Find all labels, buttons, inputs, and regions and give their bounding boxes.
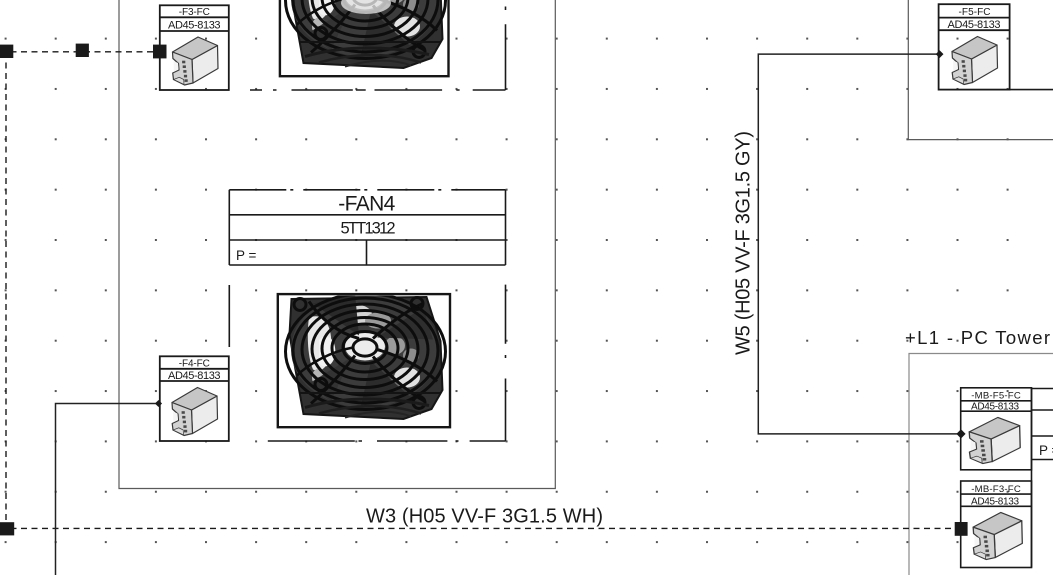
svg-text:AD45-8133: AD45-8133 [948, 19, 1001, 31]
svg-text:-MB-F3-FC: -MB-F3-FC [971, 484, 1021, 495]
svg-text:-MB-F5-FC: -MB-F5-FC [971, 391, 1021, 402]
svg-text:AD45-8133: AD45-8133 [971, 402, 1019, 413]
svg-text:AD45-8133: AD45-8133 [168, 19, 221, 31]
svg-text:P =: P = [236, 248, 257, 263]
svg-text:-FAN4: -FAN4 [338, 192, 395, 215]
svg-text:W3 (H05 VV-F 3G1.5 WH): W3 (H05 VV-F 3G1.5 WH) [366, 506, 603, 528]
svg-text:5TT1312: 5TT1312 [341, 220, 396, 238]
svg-text:-F4-FC: -F4-FC [179, 359, 210, 370]
svg-text:+L1 - PC Tower: +L1 - PC Tower [905, 327, 1050, 348]
svg-text:P =: P = [1039, 443, 1053, 458]
svg-text:AD45-8133: AD45-8133 [971, 497, 1019, 508]
svg-text:W5 (H05 VV-F 3G1.5 GY): W5 (H05 VV-F 3G1.5 GY) [733, 131, 755, 355]
svg-text:-F5-FC: -F5-FC [959, 7, 991, 18]
svg-text:AD45-8133: AD45-8133 [168, 370, 221, 382]
svg-text:-F3-FC: -F3-FC [179, 7, 210, 18]
